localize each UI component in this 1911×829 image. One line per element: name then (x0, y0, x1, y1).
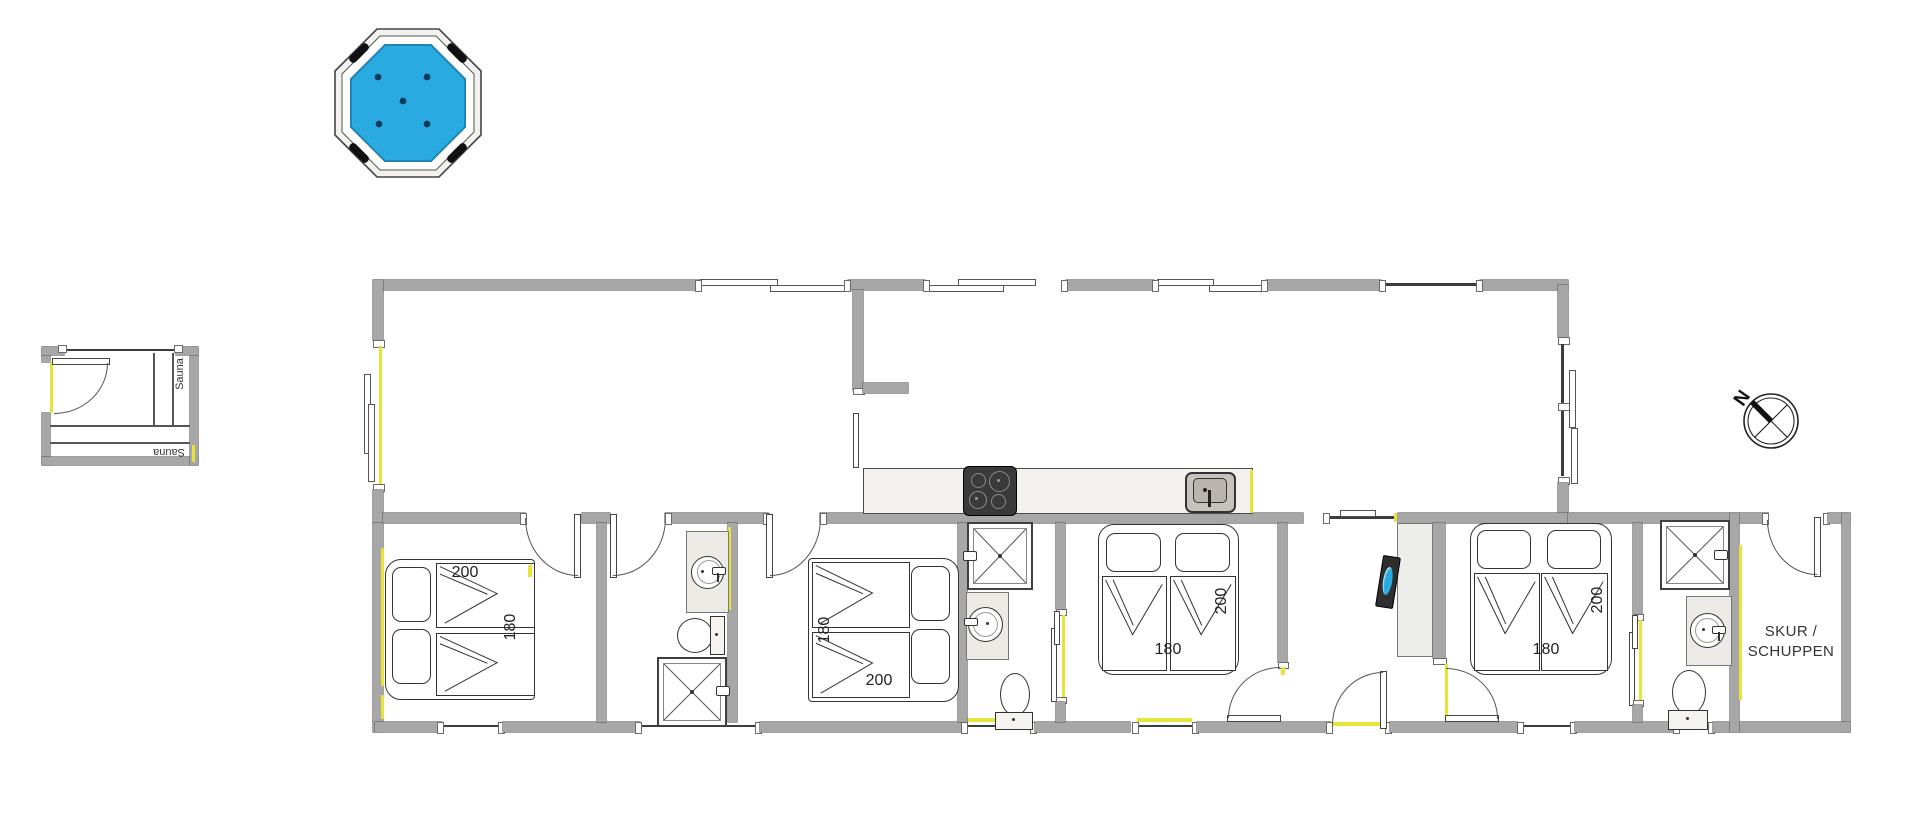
window (442, 725, 498, 727)
exterior-wall (373, 280, 383, 340)
toilet-flush-dot (715, 633, 718, 636)
window (1157, 279, 1214, 286)
shower-drain (690, 690, 694, 694)
bed-width-label: 200 (1590, 578, 1606, 622)
sauna-bench-line (50, 425, 190, 427)
bedroom-4-door-swing (1446, 668, 1498, 719)
exterior-wall (760, 722, 966, 732)
window-accent (1137, 718, 1192, 722)
door-accent (1062, 615, 1065, 697)
pass-through-window (1340, 510, 1376, 517)
window (1522, 725, 1570, 727)
hot-tub (333, 27, 483, 179)
cooktop-burner (971, 473, 986, 488)
sauna-window (64, 349, 176, 351)
interior-wall (665, 513, 768, 523)
exterior-wall (1575, 722, 1675, 732)
window (1137, 725, 1192, 727)
door-cap (665, 513, 672, 525)
window (1569, 370, 1576, 428)
pillow (1547, 530, 1601, 569)
bed-width-label: 200 (1214, 579, 1230, 623)
hot-tub-jet (424, 121, 431, 128)
window-cap (635, 722, 642, 734)
shower-valve (716, 686, 730, 696)
window-cap (437, 722, 444, 734)
kitchen-faucet (1208, 490, 1211, 507)
bed-length-label: 180 (817, 608, 833, 652)
bed-length-label: 180 (1524, 641, 1568, 659)
interior-wall (383, 513, 525, 523)
exterior-wall (1266, 280, 1381, 290)
door-cap (820, 513, 827, 525)
exterior-wall (1066, 280, 1154, 290)
cooktop-burner-dot (975, 497, 978, 500)
window-cap (1476, 280, 1483, 292)
toilet-bowl (1672, 670, 1706, 715)
shed-label: SKUR / SCHUPPEN (1740, 622, 1842, 661)
drain-dot (1702, 628, 1705, 631)
shed-door-swing (1767, 520, 1817, 575)
partition-wall (1056, 702, 1065, 722)
closet (1397, 523, 1433, 657)
sauna-door-swing (54, 363, 108, 414)
mattress (436, 633, 535, 696)
sauna-label-side: Sauna (172, 336, 188, 412)
window-cap (923, 280, 930, 292)
exterior-wall (1197, 722, 1330, 732)
shower-valve (963, 551, 977, 561)
exterior-wall (373, 490, 383, 523)
shed-label-line2: SCHUPPEN (1740, 642, 1842, 662)
window-accent (379, 346, 382, 484)
partition-wall (1633, 523, 1642, 614)
partition-wall (1278, 523, 1287, 662)
faucet-stem (717, 573, 719, 582)
window-cap (1517, 722, 1524, 734)
partition-wall (1056, 523, 1065, 609)
interior-wall (820, 513, 1303, 523)
window-cap (1323, 513, 1330, 524)
hot-tub-jet (376, 121, 383, 128)
entrance-door-swing (1332, 672, 1383, 725)
window (1209, 285, 1264, 292)
shower-drain (1693, 553, 1697, 557)
window (928, 285, 1004, 292)
window-cap (1379, 280, 1386, 292)
window-cap (961, 722, 968, 734)
interior-wall (582, 513, 610, 523)
exterior-wall (1558, 285, 1568, 337)
door-accent (1639, 620, 1642, 700)
pillow (911, 566, 950, 621)
bedroom-3-door-swing (1228, 667, 1280, 718)
drain-dot (701, 570, 704, 573)
sauna-window-cap (58, 345, 67, 353)
partition-wall (1433, 523, 1445, 658)
partition-wall (597, 523, 606, 722)
hot-tub-jet (400, 98, 407, 105)
window-cap (1061, 280, 1068, 292)
accent (528, 565, 532, 577)
counter-accent (1250, 470, 1253, 513)
window-cap (844, 280, 851, 292)
toilet-flush-dot (1012, 718, 1015, 721)
window-cap (695, 280, 702, 292)
exterior-wall (1842, 513, 1850, 732)
pillow (1175, 533, 1230, 572)
faucet (712, 567, 726, 575)
window (1571, 428, 1578, 484)
exterior-wall (1390, 722, 1517, 732)
kitchen-door-leaf (853, 413, 859, 468)
blanket-fold (437, 634, 534, 695)
kitchen-faucet-dot (1203, 488, 1207, 492)
compass-north-label: N (1730, 387, 1755, 410)
exterior-wall (503, 722, 640, 732)
pillow (1477, 530, 1531, 569)
compass-rose: N (1715, 380, 1805, 470)
shower-valve (1714, 550, 1728, 560)
pillow (1106, 533, 1161, 572)
toilet-bowl (1000, 673, 1030, 716)
hot-tub-water (351, 45, 465, 161)
pillow (392, 629, 431, 684)
toilet-tank (995, 712, 1033, 730)
pillow (911, 629, 950, 684)
exterior-wall (375, 722, 442, 732)
window-cap (1132, 722, 1139, 734)
toilet-bowl (677, 618, 713, 653)
window (770, 285, 846, 292)
bed-width-label: 200 (857, 672, 901, 690)
sauna-label-bench: Sauna (129, 444, 209, 460)
bed-width-label: 200 (443, 564, 487, 582)
shower-drain (998, 554, 1002, 558)
window (700, 279, 778, 286)
interior-wall (1398, 513, 1568, 523)
compass-north-arrow (1752, 402, 1771, 421)
bed-length-label: 180 (503, 605, 519, 649)
window-cap (1261, 280, 1268, 292)
exterior-wall (1035, 722, 1130, 732)
toilet-tank (1668, 710, 1708, 730)
faucet-stem (1718, 632, 1720, 641)
hot-tub-jet (424, 74, 431, 81)
toilet-flush-dot (1686, 717, 1689, 720)
cooktop-burner (969, 491, 987, 509)
window-cap (1152, 280, 1159, 292)
faucet (964, 618, 978, 626)
pillow (392, 567, 431, 622)
floor-plan: Sauna Sauna (0, 0, 1911, 829)
window-accent (1394, 513, 1397, 522)
bathroom-1-door-swing (613, 518, 666, 576)
sauna-door-threshold (50, 362, 53, 413)
hot-tub-jet (375, 74, 382, 81)
bathroom-3-door-leaf (1632, 615, 1638, 649)
sauna-bench-line (153, 353, 155, 426)
drain-dot (986, 622, 989, 625)
bed-length-label: 180 (1146, 641, 1190, 659)
exterior-wall (1480, 280, 1568, 290)
exterior-wall (848, 280, 925, 290)
cooktop-burner-dot (997, 479, 1000, 482)
shed-label-line1: SKUR / (1740, 622, 1842, 642)
cooktop-burner (991, 494, 1006, 509)
window (1384, 283, 1477, 286)
bathroom-2-door-leaf (1054, 611, 1060, 645)
tv-screen (1381, 566, 1394, 595)
window-cap (1558, 337, 1570, 345)
window-accent (381, 695, 384, 719)
window (368, 404, 375, 482)
window-accent (381, 548, 384, 686)
partition-wall (1633, 705, 1642, 722)
exterior-wall (375, 280, 700, 290)
cooktop (963, 466, 1017, 516)
interior-wall (863, 383, 908, 393)
kitchen-sink (1185, 472, 1236, 513)
door-accent (1281, 667, 1285, 675)
interior-wall (853, 290, 863, 390)
